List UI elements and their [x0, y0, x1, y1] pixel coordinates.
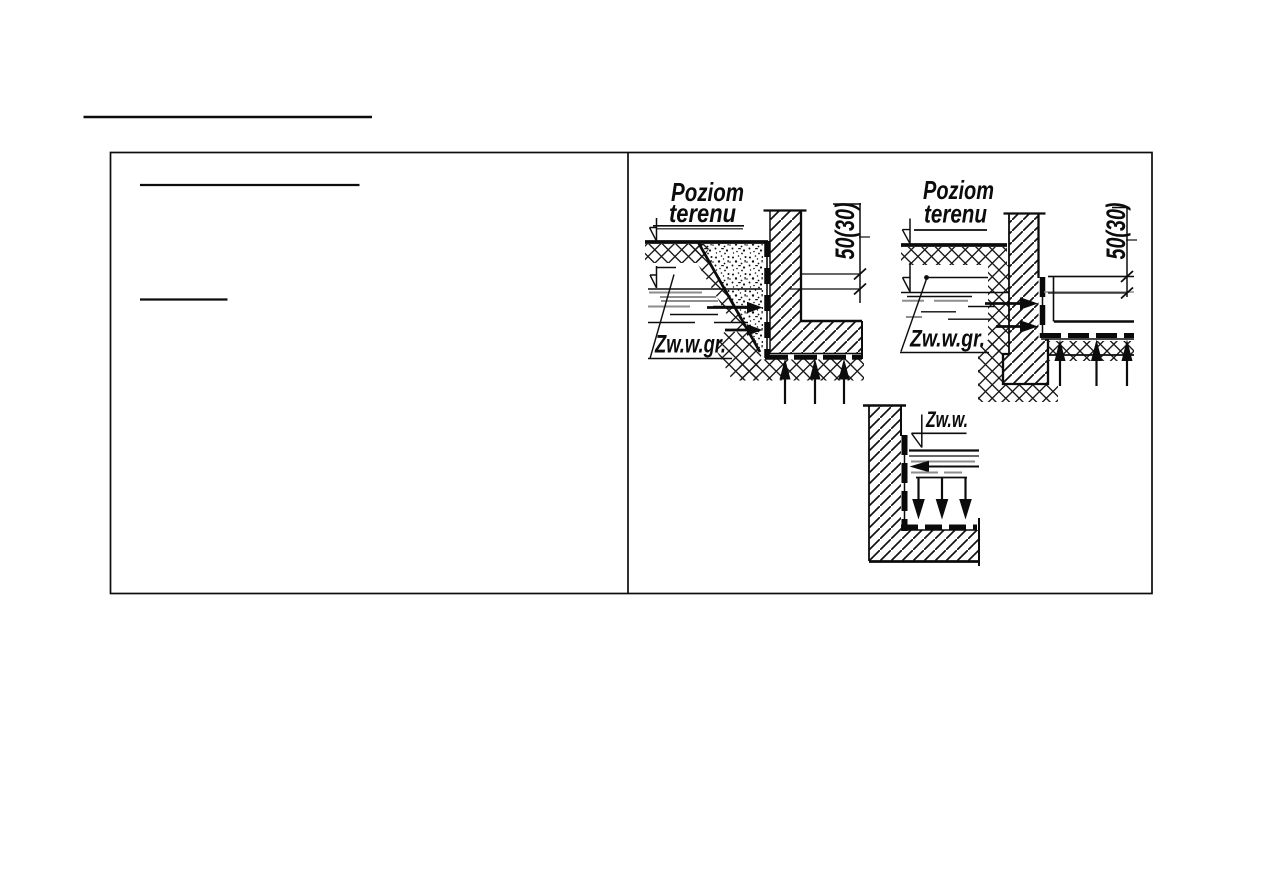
svg-text:terenu: terenu — [924, 199, 987, 229]
svg-text:Zw.w.gr.: Zw.w.gr. — [909, 326, 985, 353]
svg-text:50(30): 50(30) — [830, 202, 860, 259]
svg-text:terenu: terenu — [669, 198, 736, 228]
svg-text:Zw.w.: Zw.w. — [925, 407, 968, 432]
svg-text:50(30): 50(30) — [1101, 202, 1131, 259]
svg-text:Zw.w.gr.: Zw.w.gr. — [654, 331, 726, 359]
